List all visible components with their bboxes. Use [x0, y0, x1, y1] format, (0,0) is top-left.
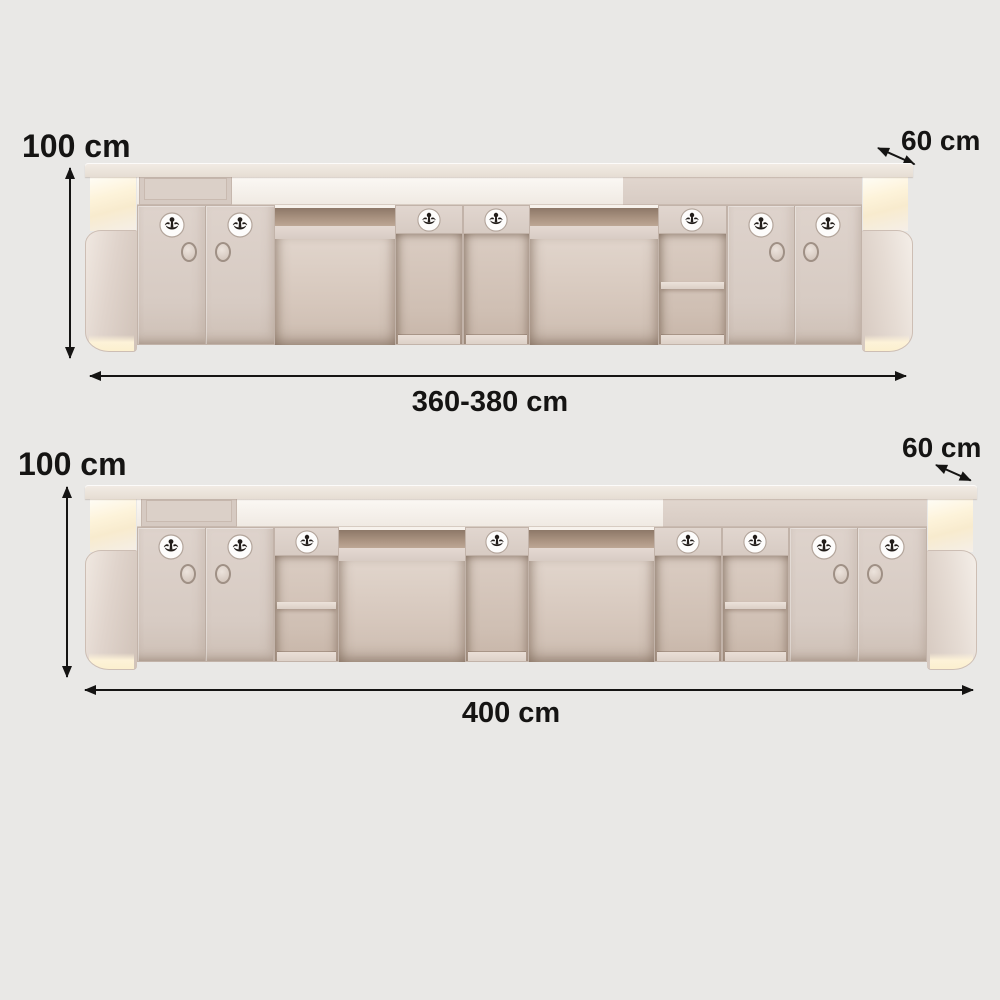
bottom-depth-label: 60 cm: [902, 434, 981, 462]
led-glow-niche: [928, 499, 972, 552]
door-handle: [181, 242, 197, 262]
top-width-arrow: [90, 375, 906, 377]
module-cubby: [465, 527, 529, 662]
keyhole-lock-icon: [676, 530, 700, 554]
cabinet-door: [795, 206, 861, 344]
keyhole-lock-icon: [158, 534, 184, 560]
door-handle: [769, 242, 785, 262]
drawer-rail: [275, 226, 395, 240]
top-depth-label: 60 cm: [901, 127, 980, 155]
led-glow-niche: [90, 499, 136, 552]
countertop-surface: [85, 163, 913, 177]
locking-drawer: [654, 527, 722, 556]
keyhole-lock-icon: [227, 534, 253, 560]
door-handle: [867, 564, 883, 584]
keyhole-lock-icon: [743, 530, 767, 554]
cabinet-door: [206, 528, 273, 661]
open-shelf-box: [463, 234, 530, 345]
keyhole-lock-icon: [811, 534, 837, 560]
door-handle: [215, 242, 231, 262]
led-glow-strip: [89, 335, 134, 351]
bottom-height-arrow: [66, 487, 68, 677]
led-glow-strip: [865, 335, 909, 351]
top-height-label: 100 cm: [22, 130, 131, 162]
product-dimension-image: 100 cm 60 cm 360-380 cm 100 cm 60 cm 400…: [0, 0, 1000, 1000]
left-raised-panel: [141, 495, 237, 527]
module-cap-left: [85, 177, 137, 352]
bottom-width-label: 400 cm: [361, 699, 661, 728]
curved-end-panel: [85, 550, 137, 670]
knee-space-opening: [529, 561, 654, 662]
open-drawer-slot: [339, 527, 465, 548]
locking-drawer: [465, 527, 529, 556]
keyhole-lock-icon: [159, 212, 185, 238]
open-shelf-box: [654, 556, 722, 662]
door-handle: [833, 564, 849, 584]
countertop: [85, 163, 913, 205]
keyhole-lock-icon: [227, 212, 253, 238]
open-shelf-box: [658, 234, 727, 345]
module-desk: [530, 205, 658, 345]
countertop: [85, 485, 977, 527]
keyhole-lock-icon: [680, 208, 704, 232]
cabinet-door: [138, 206, 206, 344]
bottom-depth-arrow: [936, 464, 972, 481]
cabinet-door: [138, 528, 206, 661]
keyhole-lock-icon: [484, 208, 508, 232]
module-cabinet: [137, 527, 274, 662]
drawer-rail: [529, 548, 654, 562]
open-shelf-box: [274, 556, 339, 662]
keyhole-lock-icon: [748, 212, 774, 238]
door-handle: [180, 564, 196, 584]
bottom-height-label: 100 cm: [18, 448, 127, 480]
knee-space-opening: [339, 561, 465, 662]
module-cubby: [463, 205, 530, 345]
module-desk: [275, 205, 395, 345]
module-cabinet: [789, 527, 927, 662]
open-shelf-box: [465, 556, 529, 662]
open-drawer-slot: [530, 205, 658, 226]
countertop-surface: [85, 485, 977, 499]
keyhole-lock-icon: [295, 530, 319, 554]
open-drawer-slot: [529, 527, 654, 548]
middle-shelf: [661, 282, 724, 289]
bottom-width-arrow: [85, 689, 973, 691]
module-cubby-shelf: [274, 527, 339, 662]
top-height-arrow: [69, 168, 71, 358]
middle-shelf: [725, 602, 786, 609]
curved-end-panel: [85, 230, 137, 353]
curved-end-panel: [862, 230, 913, 353]
left-raised-panel: [139, 173, 232, 205]
door-handle: [803, 242, 819, 262]
reception-counter-360-380: [85, 163, 913, 353]
locking-drawer: [722, 527, 789, 556]
locking-drawer: [463, 205, 530, 234]
module-cabinet: [137, 205, 274, 345]
module-cubby-shelf: [722, 527, 789, 662]
reception-counter-400: [85, 485, 977, 670]
knee-space-opening: [530, 239, 658, 345]
led-glow-strip: [930, 653, 973, 669]
drawer-rail: [530, 226, 658, 240]
knee-space-opening: [275, 239, 395, 345]
curved-end-panel: [927, 550, 977, 670]
keyhole-lock-icon: [815, 212, 841, 238]
module-cap-right: [927, 499, 977, 670]
door-handle: [215, 564, 231, 584]
cabinet-door: [728, 206, 795, 344]
module-cubby: [654, 527, 722, 662]
middle-shelf: [277, 602, 336, 609]
module-cap-left: [85, 499, 137, 670]
drawer-rail: [339, 548, 465, 562]
led-glow-niche: [90, 177, 136, 231]
module-cabinet: [727, 205, 862, 345]
led-glow-strip: [89, 653, 134, 669]
open-shelf-box: [395, 234, 463, 345]
cabinet-door: [858, 528, 926, 661]
keyhole-lock-icon: [879, 534, 905, 560]
cabinet-door: [206, 206, 273, 344]
locking-drawer: [274, 527, 339, 556]
led-glow-niche: [863, 177, 909, 231]
module-desk: [529, 527, 654, 662]
module-cap-right: [862, 177, 913, 352]
top-width-label: 360-380 cm: [340, 388, 640, 417]
open-shelf-box: [722, 556, 789, 662]
keyhole-lock-icon: [417, 208, 441, 232]
cabinet-door: [790, 528, 859, 661]
locking-drawer: [658, 205, 727, 234]
keyhole-lock-icon: [485, 530, 509, 554]
module-cubby-shelf: [658, 205, 727, 345]
open-drawer-slot: [275, 205, 395, 226]
locking-drawer: [395, 205, 463, 234]
module-cubby: [395, 205, 463, 345]
module-desk: [339, 527, 465, 662]
